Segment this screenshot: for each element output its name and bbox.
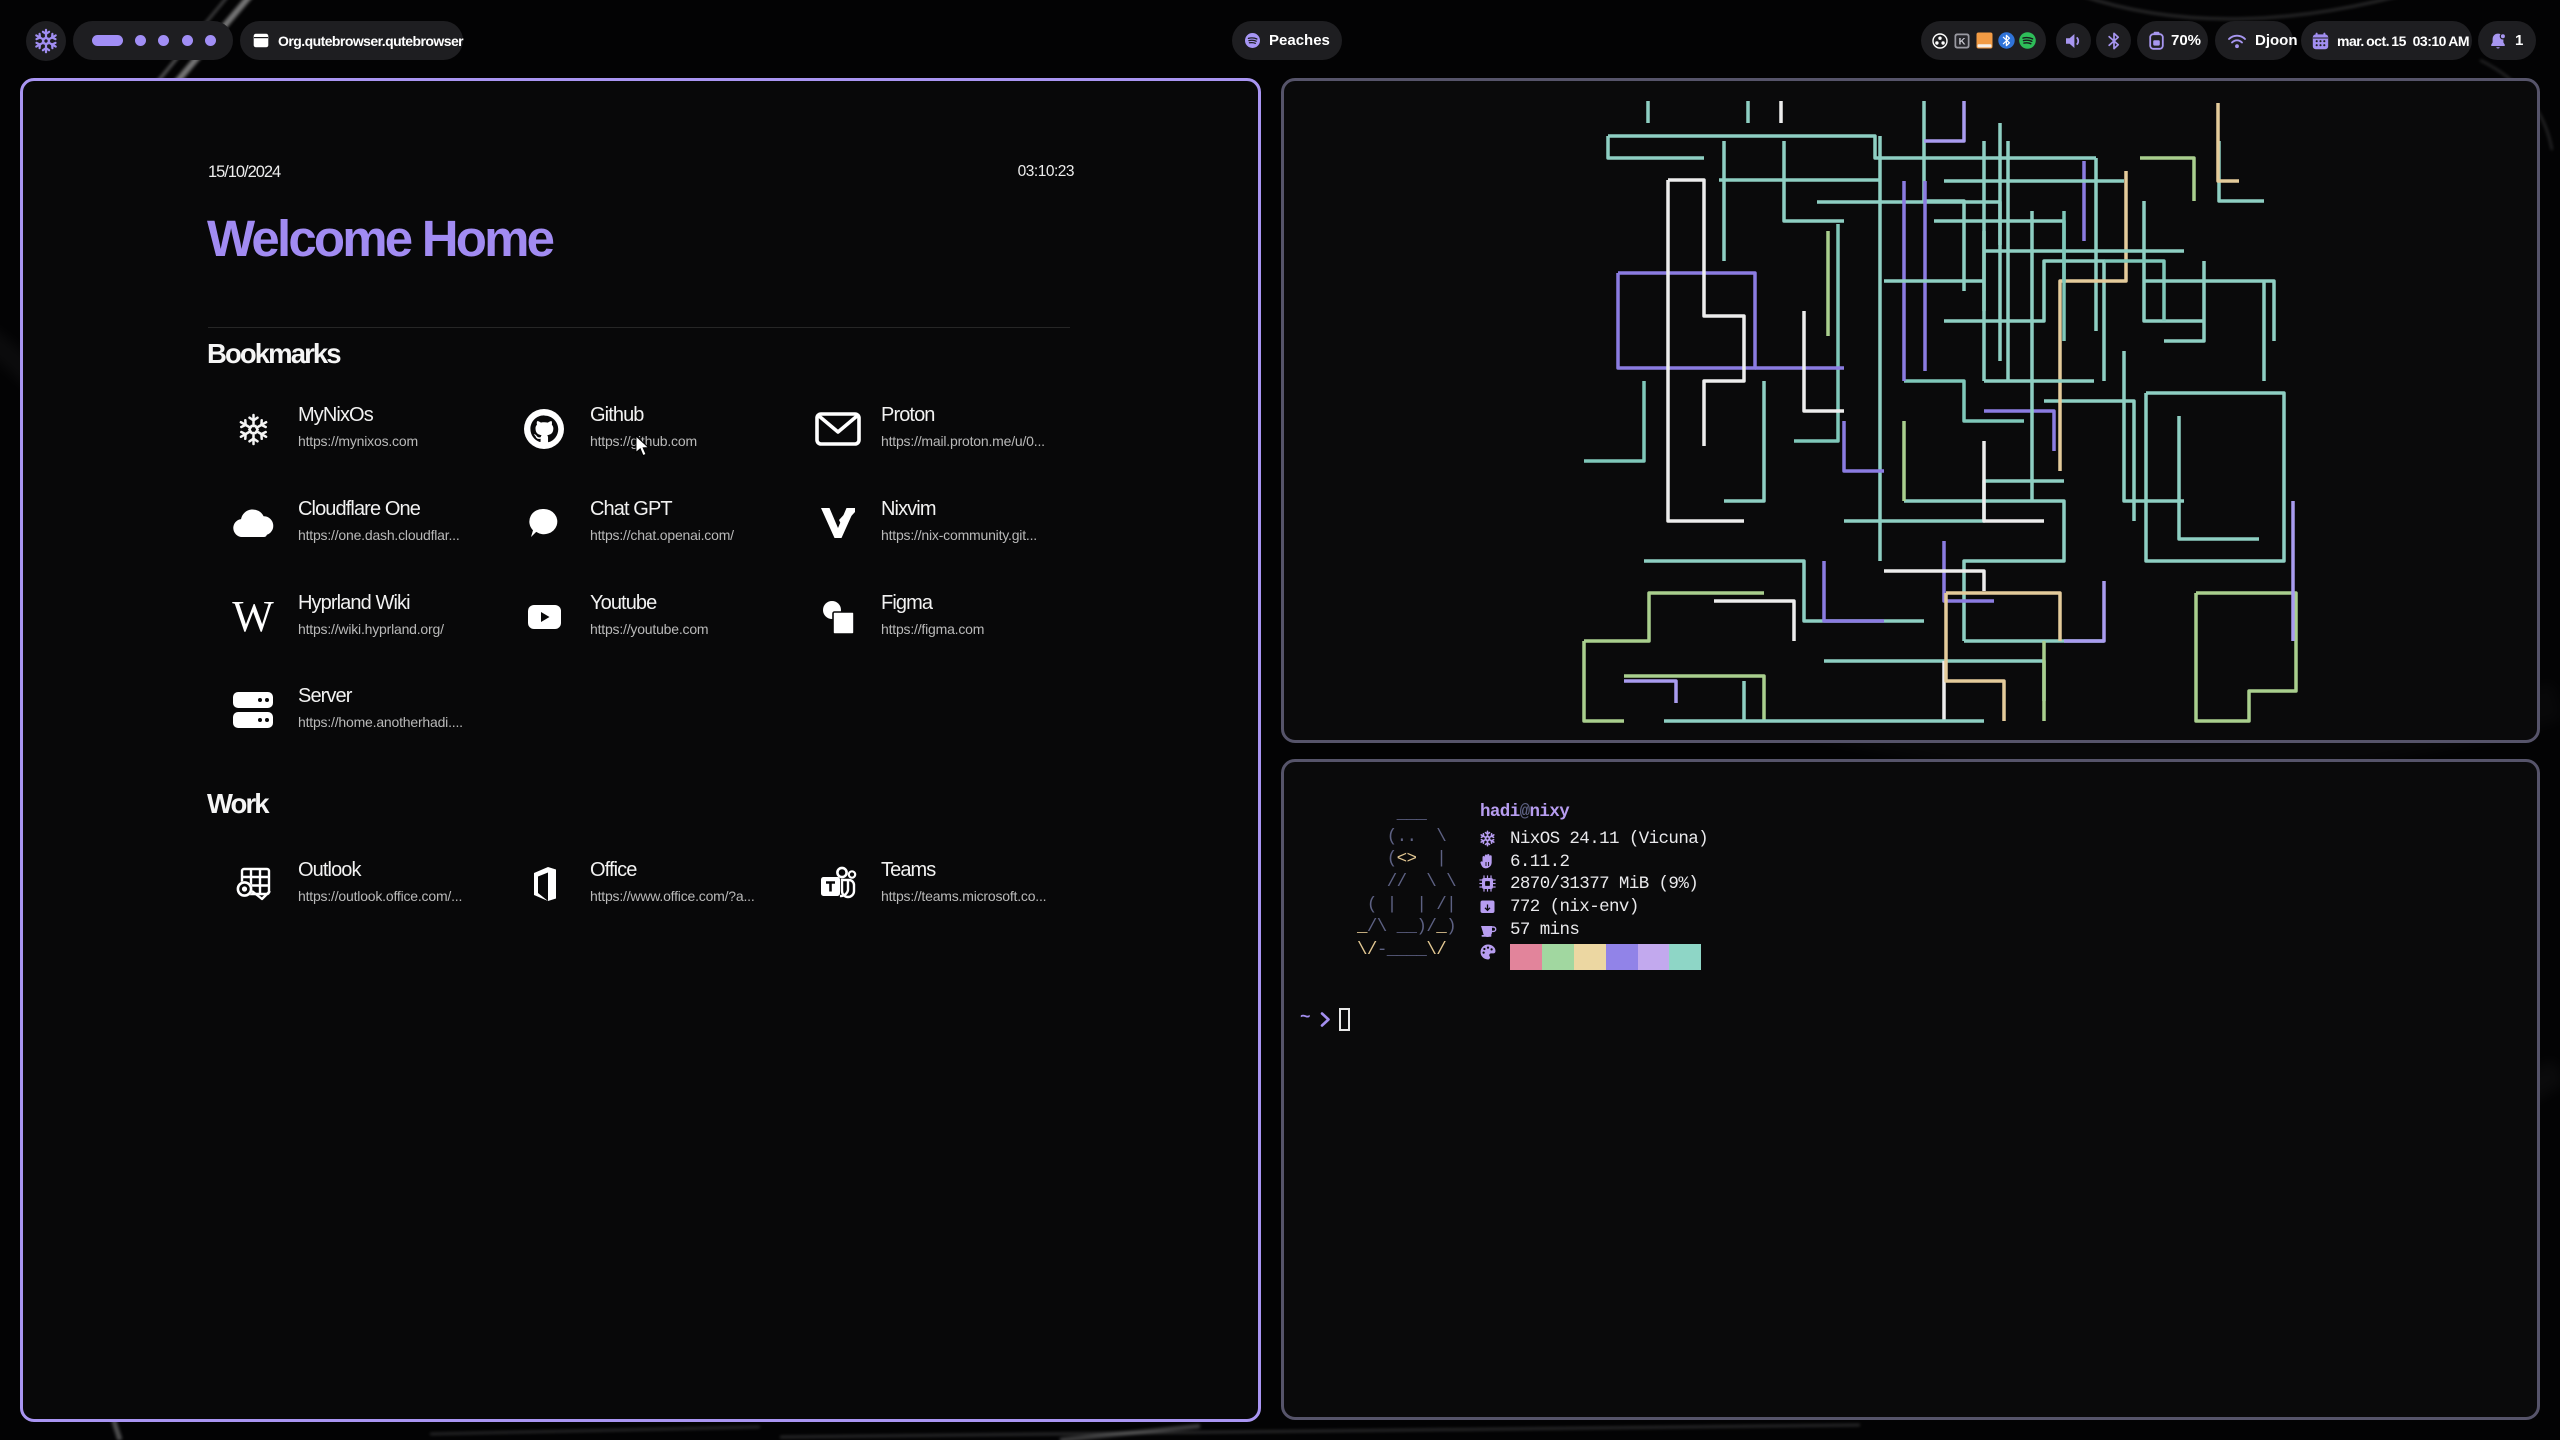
svg-text:K: K [1959, 37, 1966, 48]
